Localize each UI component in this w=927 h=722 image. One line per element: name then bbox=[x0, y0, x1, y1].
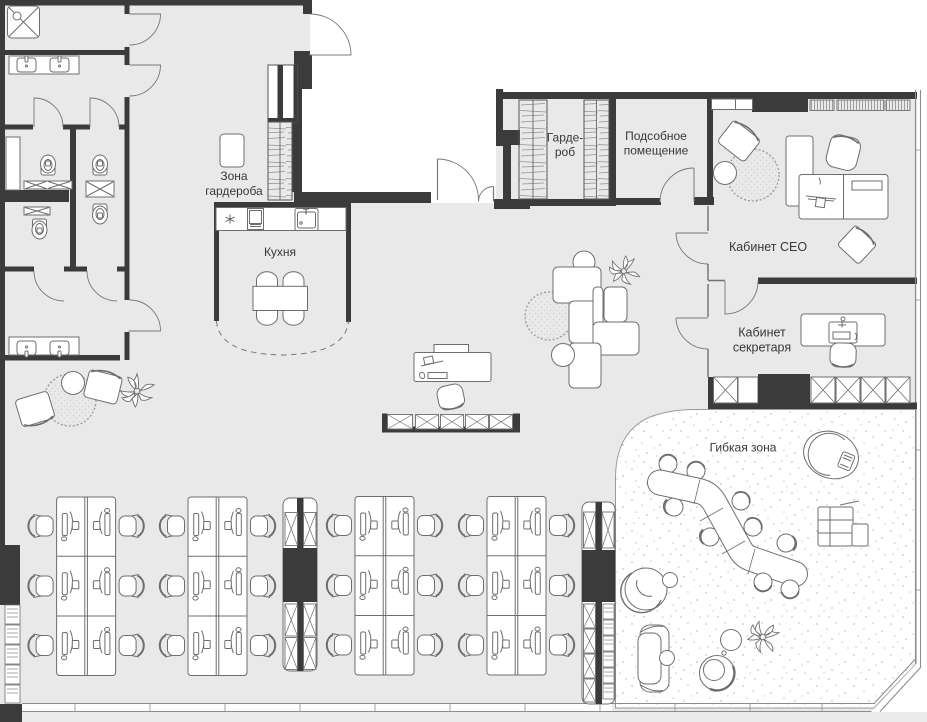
svg-text:Кабинет CEO: Кабинет CEO bbox=[729, 240, 807, 254]
svg-text:роб: роб bbox=[555, 145, 575, 159]
svg-text:помещение: помещение bbox=[624, 144, 689, 158]
svg-text:секретаря: секретаря bbox=[733, 341, 791, 355]
svg-text:Зона: Зона bbox=[220, 169, 248, 183]
svg-text:Гибкая зона: Гибкая зона bbox=[710, 441, 777, 455]
svg-text:Кухня: Кухня bbox=[264, 245, 296, 259]
svg-text:гардероба: гардероба bbox=[205, 184, 263, 198]
svg-text:Кабинет: Кабинет bbox=[738, 326, 786, 340]
svg-text:Подсобное: Подсобное bbox=[625, 129, 687, 143]
svg-text:Гарде-: Гарде- bbox=[547, 131, 584, 145]
